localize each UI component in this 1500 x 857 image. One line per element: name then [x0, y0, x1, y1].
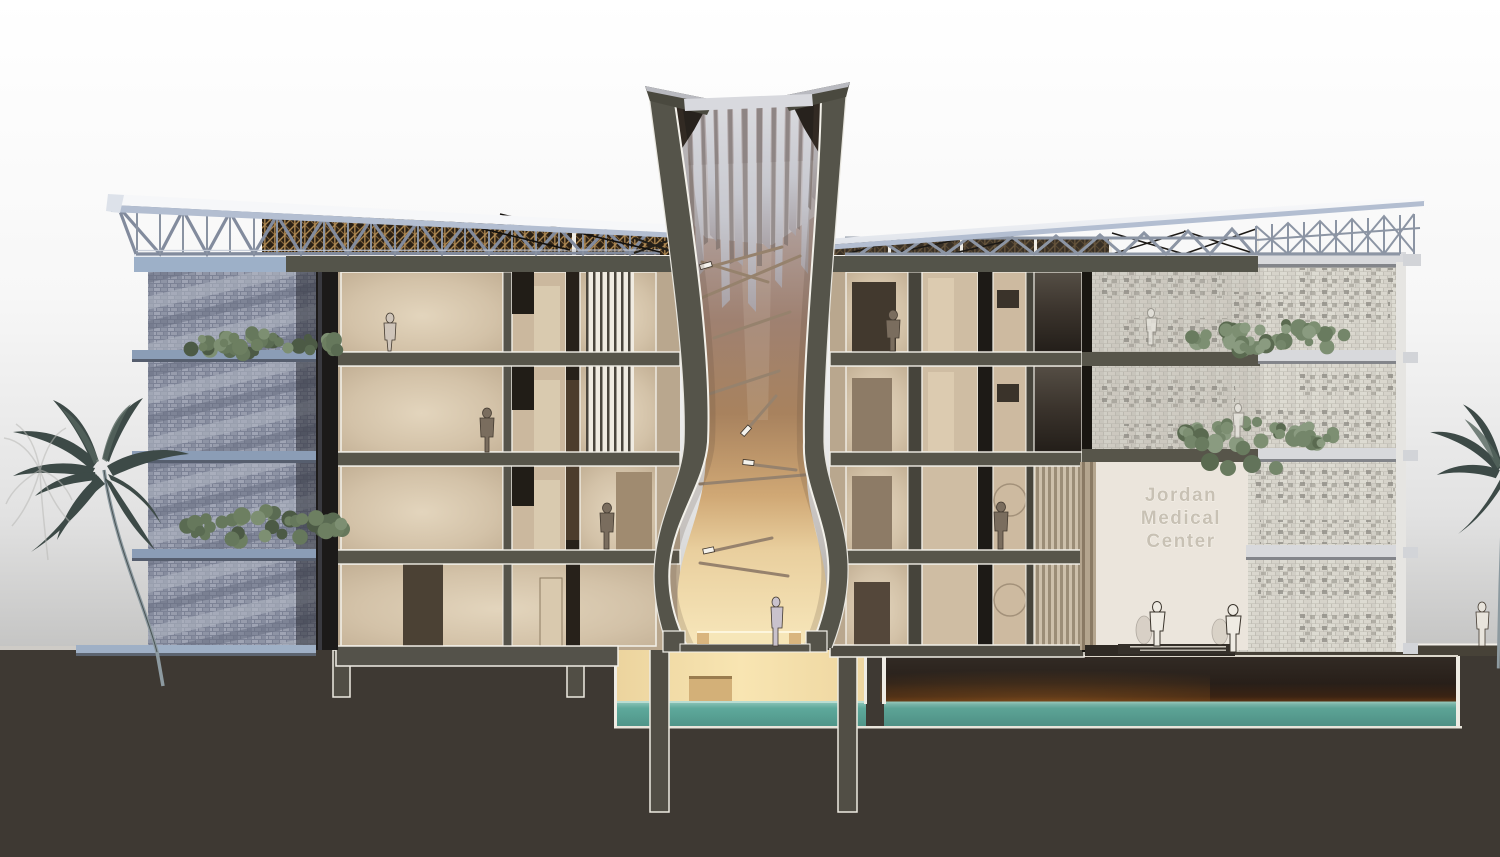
svg-text:Medical: Medical [1141, 508, 1221, 529]
svg-text:Center: Center [1146, 531, 1215, 552]
svg-text:Jordan: Jordan [1145, 485, 1217, 506]
